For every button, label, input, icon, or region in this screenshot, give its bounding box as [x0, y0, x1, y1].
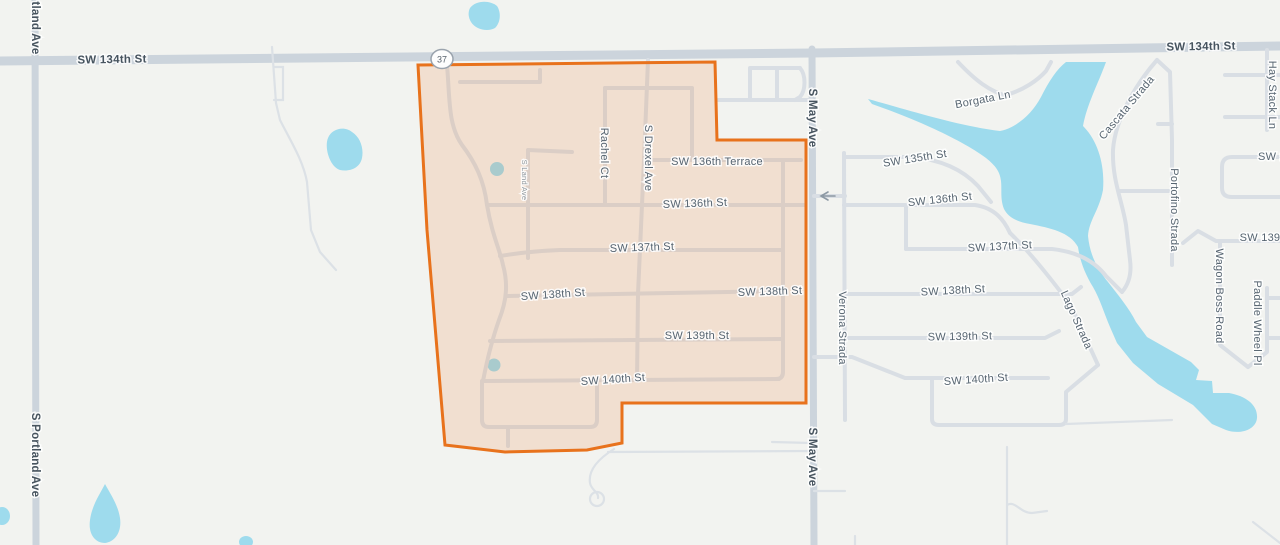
street-label-sw139-frag: SW 139 [1240, 232, 1280, 244]
street-label-drexel-ave: S Drexel Ave [642, 125, 654, 191]
street-label-may-top: S May Ave [806, 89, 818, 148]
street-label-rachel-ct: Rachel Ct [598, 128, 610, 179]
street-label-sw138-mid: SW 138th St [738, 285, 803, 299]
street-label-land-ave: S Land Ave [520, 160, 529, 201]
street-label-verona: Verona Strada [836, 291, 848, 365]
street-label-sw137-left: SW 137th St [610, 241, 675, 255]
street-label-portland-top: tland Ave [29, 1, 41, 54]
street-label-haystack: Hay Stack Ln [1266, 61, 1278, 129]
street-label-wagon-boss: Wagon Boss Road [1213, 248, 1225, 343]
map-viewport[interactable]: 37 SW 134th StSW 134th Sttland AveS Port… [0, 0, 1280, 545]
highway-shield-37: 37 [431, 50, 453, 69]
street-label-sw-frag: SW 1 [1258, 151, 1280, 163]
street-label-portland-mid: S Portland Ave [29, 413, 41, 497]
street-label-sw134-right: SW 134th St [1166, 40, 1235, 53]
street-label-may-bottom: S May Ave [806, 428, 818, 487]
street-label-portofino: Portofino Strada [1168, 168, 1180, 252]
highway-shield-route: 37 [437, 54, 447, 64]
street-label-paddle-wheel: Paddle Wheel Pl [1251, 280, 1263, 365]
street-label-sw134-left: SW 134th St [77, 53, 146, 66]
street-label-sw136-terr: SW 136th Terrace [671, 156, 763, 168]
street-label-sw139-right: SW 139th St [928, 330, 993, 343]
street-label-sw139-mid: SW 139th St [665, 330, 730, 342]
map-canvas[interactable]: 37 SW 134th StSW 134th Sttland AveS Port… [0, 0, 1280, 545]
road-verona-strada [844, 155, 845, 420]
street-label-sw136-left: SW 136th St [663, 197, 728, 211]
